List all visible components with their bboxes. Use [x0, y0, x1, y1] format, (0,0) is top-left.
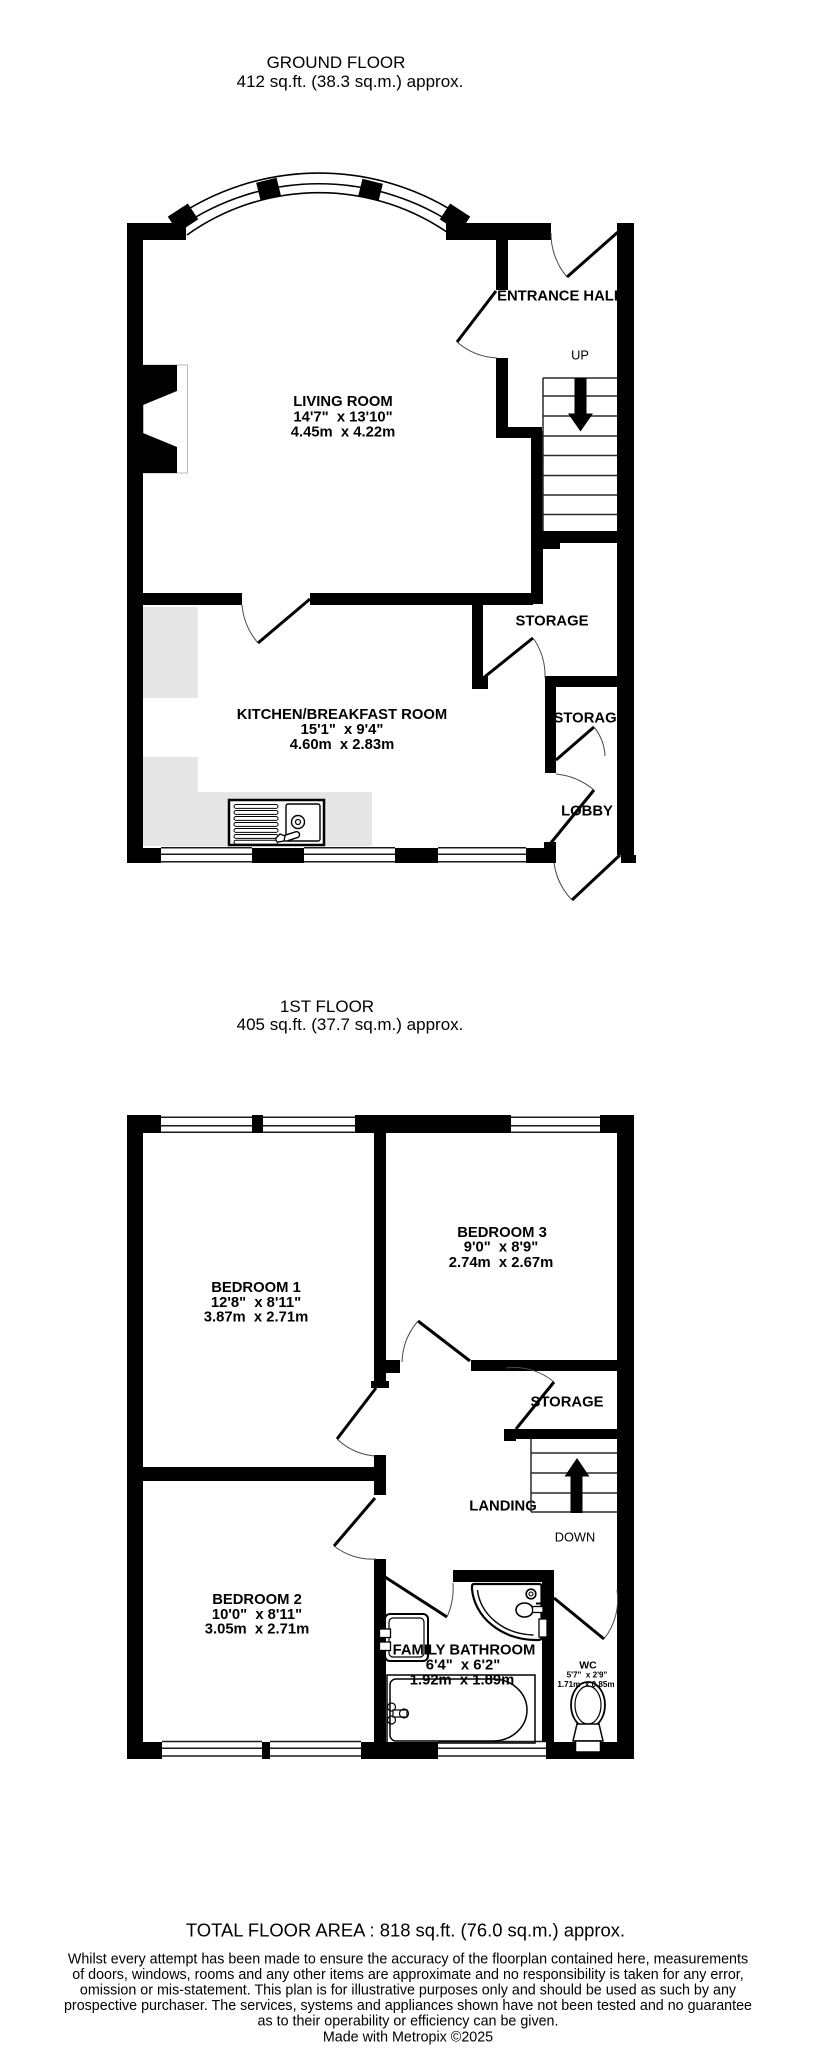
svg-text:5'7" x 2'9": 5'7" x 2'9"	[567, 1671, 608, 1680]
svg-text:BEDROOM 1: BEDROOM 1	[211, 1280, 301, 1296]
svg-text:of doors, windows, rooms and a: of doors, windows, rooms and any other i…	[72, 1967, 744, 1983]
svg-text:LOBBY: LOBBY	[561, 804, 613, 820]
svg-text:14'7" x 13'10": 14'7" x 13'10"	[293, 410, 392, 426]
svg-text:4.45m x 4.22m: 4.45m x 4.22m	[291, 425, 395, 441]
svg-text:Whilst every attempt has been: Whilst every attempt has been made to en…	[68, 1952, 748, 1968]
svg-text:412 sq.ft. (38.3 sq.m.) approx: 412 sq.ft. (38.3 sq.m.) approx.	[237, 72, 464, 91]
svg-text:GROUND FLOOR: GROUND FLOOR	[267, 53, 406, 72]
svg-text:9'0" x 8'9": 9'0" x 8'9"	[464, 1240, 539, 1256]
svg-text:405 sq.ft. (37.7 sq.m.) approx: 405 sq.ft. (37.7 sq.m.) approx.	[237, 1015, 464, 1034]
svg-text:6'4" x 6'2": 6'4" x 6'2"	[426, 1658, 501, 1674]
svg-text:DOWN: DOWN	[555, 1530, 596, 1545]
svg-text:LANDING: LANDING	[469, 1499, 536, 1515]
svg-text:KITCHEN/BREAKFAST ROOM: KITCHEN/BREAKFAST ROOM	[237, 707, 447, 723]
svg-text:BEDROOM 2: BEDROOM 2	[212, 1592, 302, 1608]
svg-text:ENTRANCE HALL: ENTRANCE HALL	[497, 289, 623, 305]
svg-text:2.74m x 2.67m: 2.74m x 2.67m	[449, 1255, 553, 1271]
svg-text:LIVING ROOM: LIVING ROOM	[293, 394, 392, 410]
svg-text:3.05m x 2.71m: 3.05m x 2.71m	[205, 1622, 309, 1638]
svg-text:TOTAL FLOOR AREA : 818 sq.ft.: TOTAL FLOOR AREA : 818 sq.ft. (76.0 sq.m…	[186, 1920, 625, 1941]
svg-text:3.87m x 2.71m: 3.87m x 2.71m	[204, 1310, 308, 1326]
svg-text:omission or mis-statement. Thi: omission or mis-statement. This plan is …	[80, 1983, 737, 1999]
svg-text:1ST FLOOR: 1ST FLOOR	[280, 997, 374, 1016]
svg-text:as to their operability or eff: as to their operability or efficiency ca…	[258, 2014, 559, 2030]
svg-text:STORAGE: STORAGE	[516, 614, 589, 630]
svg-text:prospective purchaser. The ser: prospective purchaser. The services, sys…	[64, 1998, 752, 2014]
svg-text:Made with Metropix ©2025: Made with Metropix ©2025	[323, 2030, 493, 2046]
svg-text:FAMILY BATHROOM: FAMILY BATHROOM	[393, 1643, 536, 1659]
svg-text:15'1" x 9'4": 15'1" x 9'4"	[301, 722, 384, 738]
svg-text:1.92m x 1.89m: 1.92m x 1.89m	[410, 1673, 514, 1689]
svg-text:4.60m x 2.83m: 4.60m x 2.83m	[290, 737, 394, 753]
svg-text:STORAGE: STORAGE	[554, 711, 627, 727]
svg-text:1.71m x 0.85m: 1.71m x 0.85m	[557, 1680, 614, 1689]
svg-text:UP: UP	[571, 348, 589, 363]
